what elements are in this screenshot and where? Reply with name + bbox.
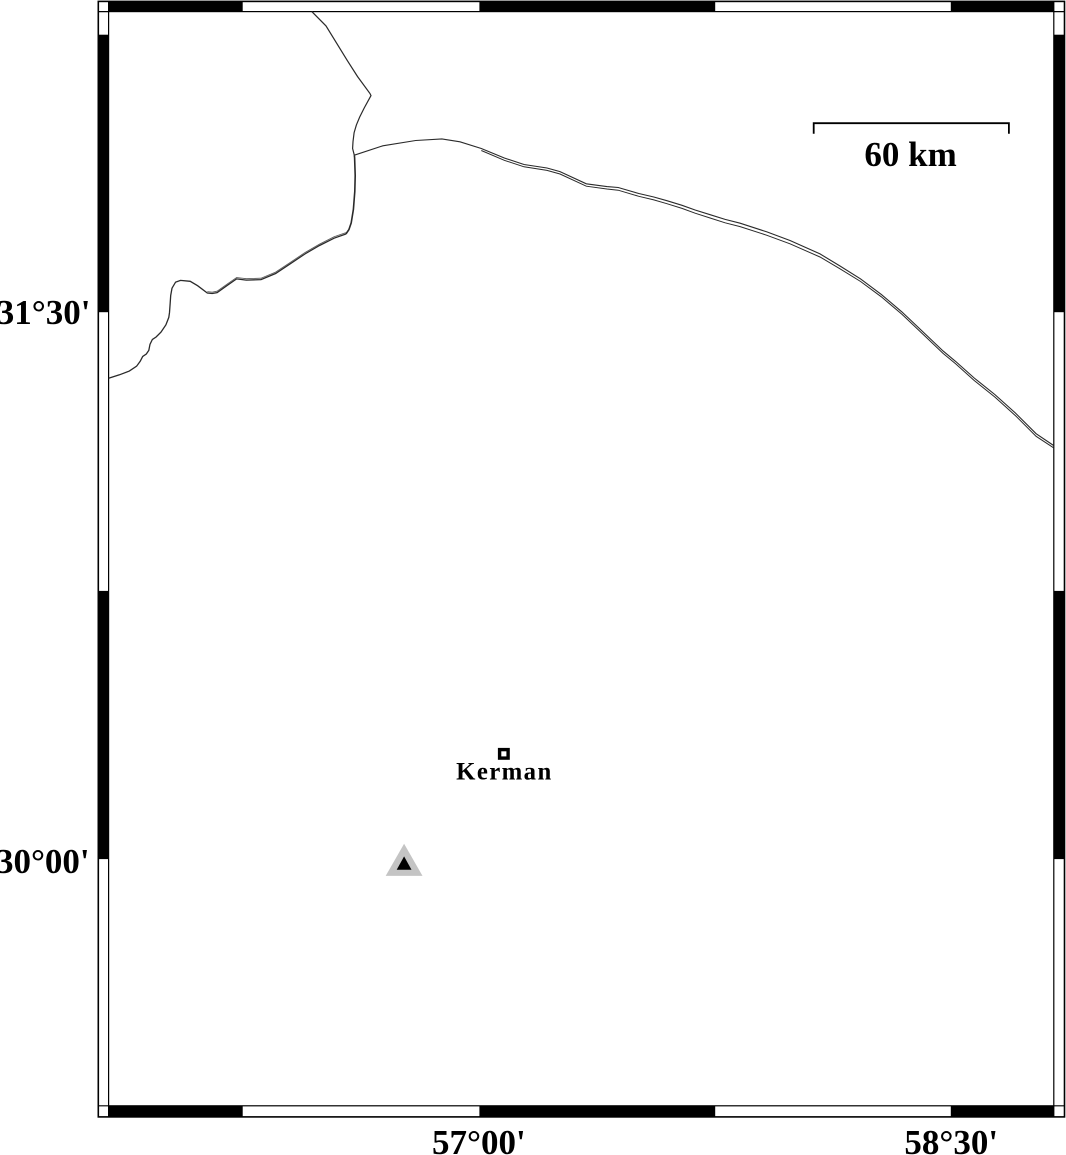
svg-text:57°00': 57°00': [432, 1123, 526, 1155]
svg-text:58°30': 58°30': [904, 1123, 998, 1155]
svg-text:30°00': 30°00': [0, 842, 90, 881]
svg-text:31°30': 31°30': [0, 293, 90, 332]
svg-text:Kerman: Kerman: [456, 759, 553, 786]
svg-text:60 km: 60 km: [864, 135, 956, 174]
